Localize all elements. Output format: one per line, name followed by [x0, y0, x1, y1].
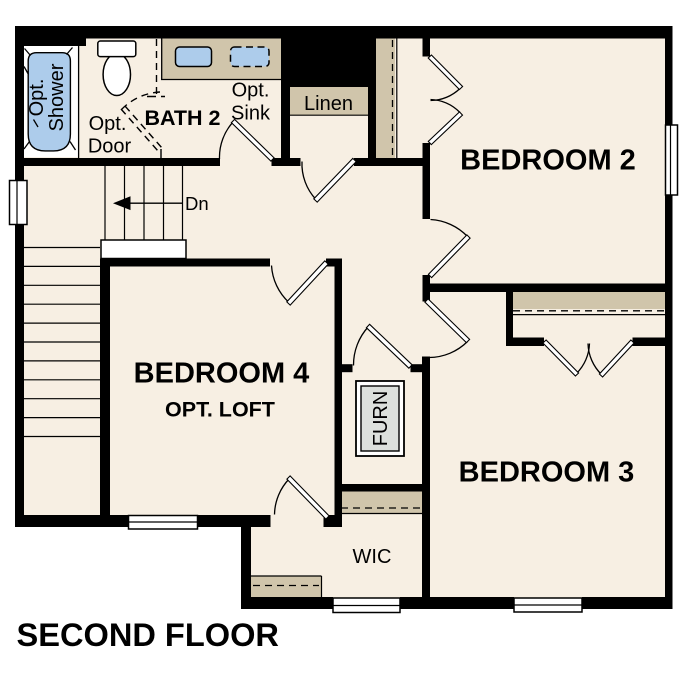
svg-text:Door: Door — [88, 136, 132, 158]
svg-text:OPT. LOFT: OPT. LOFT — [165, 398, 275, 422]
svg-text:Opt.: Opt. — [89, 113, 127, 135]
svg-text:FURN: FURN — [370, 391, 392, 447]
svg-text:Dn: Dn — [185, 193, 209, 214]
svg-text:BEDROOM 3: BEDROOM 3 — [459, 457, 635, 489]
svg-text:BATH 2: BATH 2 — [144, 106, 220, 130]
svg-text:BEDROOM 2: BEDROOM 2 — [460, 145, 636, 177]
svg-text:Linen: Linen — [304, 93, 353, 115]
svg-text:WIC: WIC — [353, 546, 392, 568]
svg-text:SECOND FLOOR: SECOND FLOOR — [17, 616, 279, 653]
svg-text:Opt.: Opt. — [232, 80, 270, 102]
svg-text:BEDROOM 4: BEDROOM 4 — [134, 358, 310, 390]
